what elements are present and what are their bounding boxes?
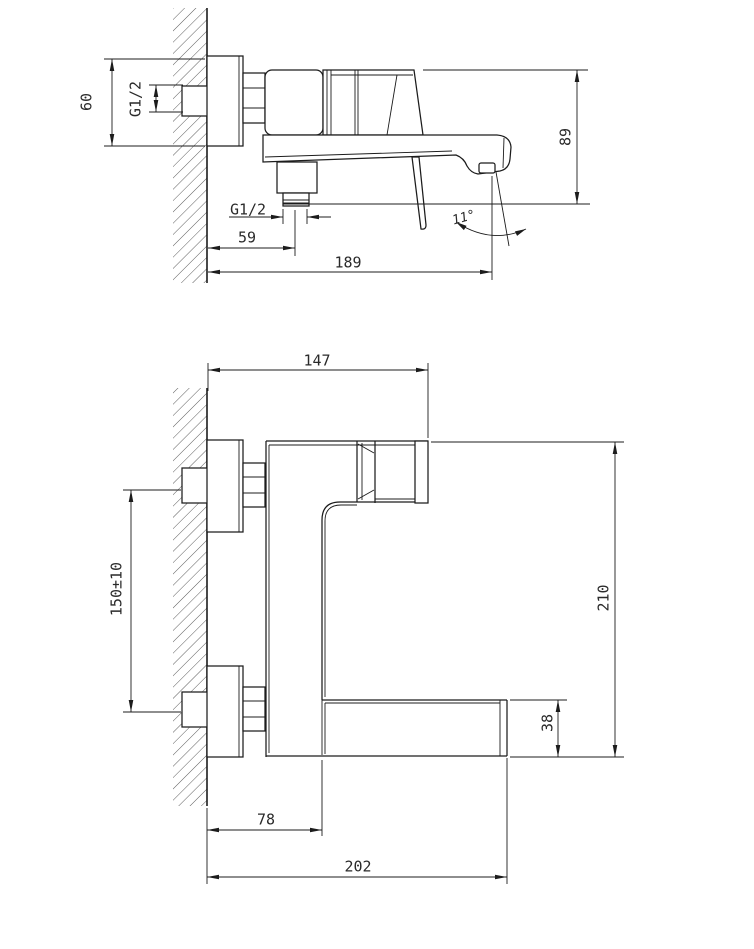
dim-label-outlet-thread: G1/2 (230, 203, 266, 218)
hex-nut (243, 73, 265, 123)
dim-label-reach-189: 189 (334, 256, 361, 271)
wall-hatch (173, 388, 207, 806)
side-view (104, 8, 590, 283)
escutcheon-bottom (207, 666, 243, 757)
dim-label-height-210: 210 (597, 584, 612, 611)
cartridge-housing (265, 70, 323, 135)
dim-label-handle-reach-147: 147 (303, 354, 330, 369)
hex-nut-bottom (243, 687, 265, 731)
inlet-fitting-bottom (182, 692, 208, 727)
dim-label-riser-78: 78 (257, 813, 275, 828)
dim-label-reach-202: 202 (344, 860, 371, 875)
inlet-fitting (182, 86, 208, 116)
dim-label-inlet-thread: G1/2 (129, 81, 144, 117)
outlet-block (277, 162, 317, 193)
hex-nut-top (243, 463, 265, 507)
handle-end-cap (415, 441, 428, 503)
dim-label-escutcheon-height: 60 (80, 93, 95, 111)
diverter-rod (412, 157, 426, 229)
dim-label-inlet-spacing: 150±10 (110, 562, 125, 616)
faucet-drawing-linework (0, 0, 754, 949)
inlet-fitting-top (182, 468, 208, 503)
handle-side (323, 70, 423, 135)
dim-label-spout-height-38: 38 (541, 714, 556, 732)
aerator (479, 163, 495, 173)
faucet-body-front (266, 441, 507, 757)
dim-label-height-89: 89 (559, 128, 574, 146)
escutcheon (207, 56, 243, 146)
technical-drawing-canvas: 60 G1/2 89 G1/2 59 189 11° 147 150±10 21… (0, 0, 754, 949)
wall-hatch (173, 8, 207, 283)
dim-label-offset-59: 59 (238, 231, 256, 246)
front-view (123, 363, 624, 884)
escutcheon-top (207, 440, 243, 532)
handle-front (357, 441, 428, 503)
